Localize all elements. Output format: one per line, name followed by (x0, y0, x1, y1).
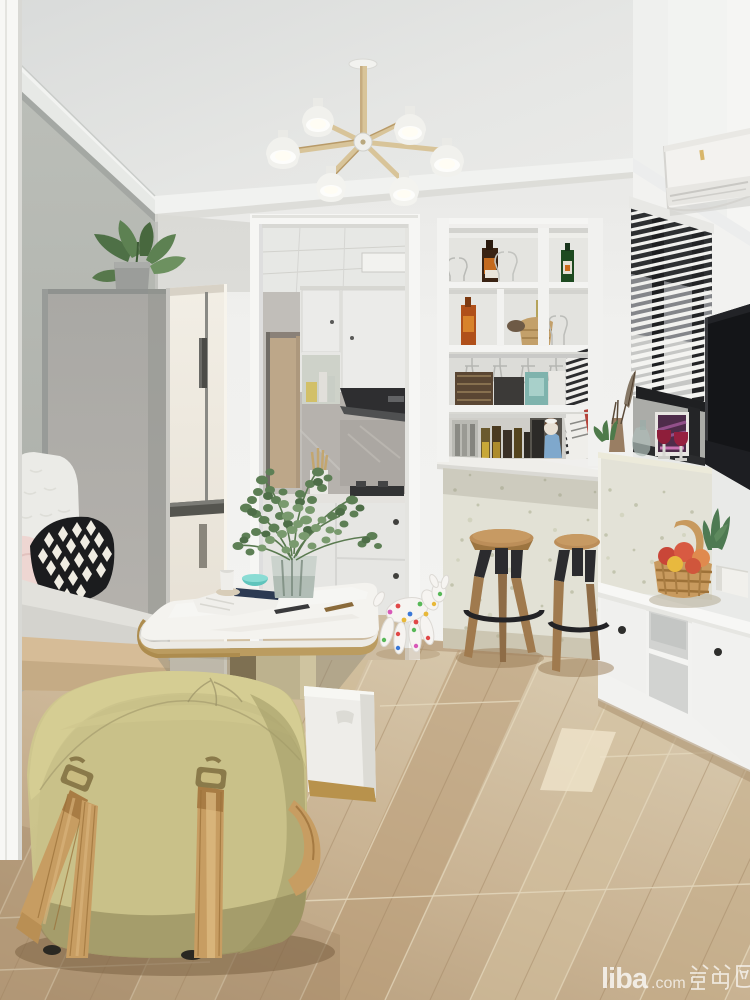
svg-text:liba: liba (601, 963, 649, 995)
svg-text:.com: .com (651, 975, 686, 992)
